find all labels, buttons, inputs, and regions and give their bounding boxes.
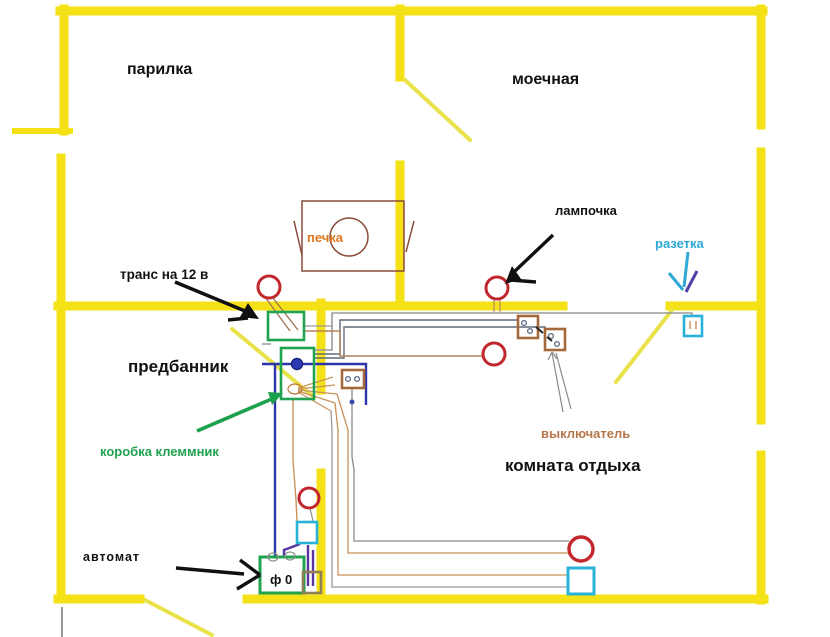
avtomat-arrow [176, 560, 260, 589]
stove-tick-right [406, 221, 414, 252]
door-swing-top-middle [405, 80, 470, 140]
wire-node-dot [350, 400, 355, 405]
breaker-box: ф 0 [260, 552, 304, 593]
junction-blue-terminal [292, 359, 303, 370]
label-rozetka: разетка [655, 236, 705, 251]
label-moechnaya: моечная [512, 71, 579, 88]
breaker-text: ф 0 [270, 572, 292, 587]
wire-brown-lamp [304, 331, 483, 356]
wire-tan-predbannik [293, 399, 297, 521]
stove-tick-left [294, 221, 302, 255]
label-lampochka: лампочка [555, 203, 618, 218]
switch-3 [342, 370, 364, 405]
diagram-canvas: ф 0 [0, 0, 830, 637]
label-predbannik: предбанник [128, 357, 229, 376]
wire-gray-top-socket [314, 313, 692, 350]
switch-2 [545, 329, 565, 350]
korobka-arrow [197, 392, 283, 431]
label-komnata: комната отдыха [505, 456, 641, 475]
lamp-rest-room-icon [483, 343, 505, 365]
socket-top-right-outline [684, 316, 702, 336]
label-trans: транс на 12 в [120, 267, 208, 282]
walls [15, 9, 764, 600]
lamp-moechnaya-icon [486, 277, 508, 299]
label-korobka: коробка клеммник [100, 444, 219, 459]
wire-bottom-socket-1 [335, 403, 567, 575]
lamp-predbannik-icon [299, 488, 319, 508]
lamp-bottom-icon [569, 537, 593, 561]
switches [342, 316, 565, 405]
socket-top-right [684, 316, 702, 336]
wire-bottom-socket-2 [331, 411, 567, 587]
arrows [175, 235, 697, 589]
label-parilka: парилка [127, 61, 192, 78]
wiring-diagram: ф 0 [0, 0, 830, 637]
wire-slate-switch2 [314, 327, 545, 358]
label-avtomat: автомат [83, 550, 140, 564]
label-vyklyuchatel: выключатель [541, 426, 630, 441]
socket-bottom-outline [568, 568, 594, 594]
vyklyuchatel-arrow [548, 352, 571, 412]
trans-arrow [175, 282, 259, 320]
wires [262, 297, 692, 587]
door-swing-bottom [145, 600, 212, 635]
label-pechka: печка [307, 230, 344, 245]
wire-gray-lamp-socket-link [310, 508, 313, 521]
lampochka-arrow [505, 235, 553, 284]
lamp-12v-icon [258, 276, 280, 298]
rozetka-arrow [669, 252, 697, 292]
door-swing-rest-room [616, 310, 672, 382]
socket-predbannik-outline [297, 522, 317, 543]
